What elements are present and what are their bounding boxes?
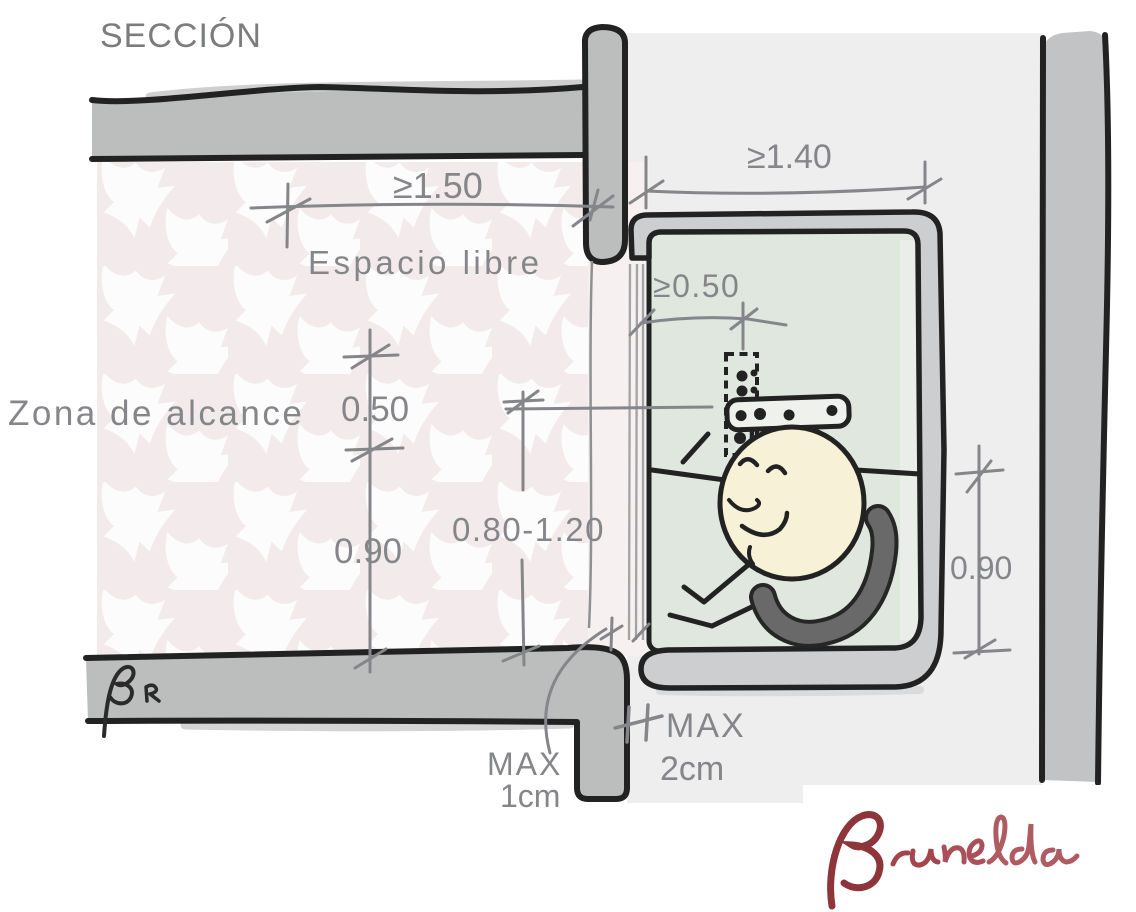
svg-text:Zona de alcance: Zona de alcance	[8, 394, 304, 433]
svg-text:Espacio libre: Espacio libre	[308, 244, 542, 281]
svg-text:≥1.50: ≥1.50	[393, 165, 483, 206]
svg-text:≥0.50: ≥0.50	[653, 268, 740, 304]
svg-text:0.50: 0.50	[341, 390, 409, 429]
svg-text:0.90: 0.90	[334, 532, 402, 571]
svg-text:0.80-1.20: 0.80-1.20	[452, 511, 605, 548]
svg-text:1cm: 1cm	[500, 778, 560, 814]
svg-text:≥1.40: ≥1.40	[747, 138, 832, 176]
svg-text:MAX: MAX	[666, 707, 746, 745]
svg-text:SECCIÓN: SECCIÓN	[100, 17, 262, 55]
svg-text:2cm: 2cm	[660, 750, 724, 788]
svg-text:0.90: 0.90	[950, 550, 1012, 586]
svg-text:MAX: MAX	[487, 746, 562, 782]
